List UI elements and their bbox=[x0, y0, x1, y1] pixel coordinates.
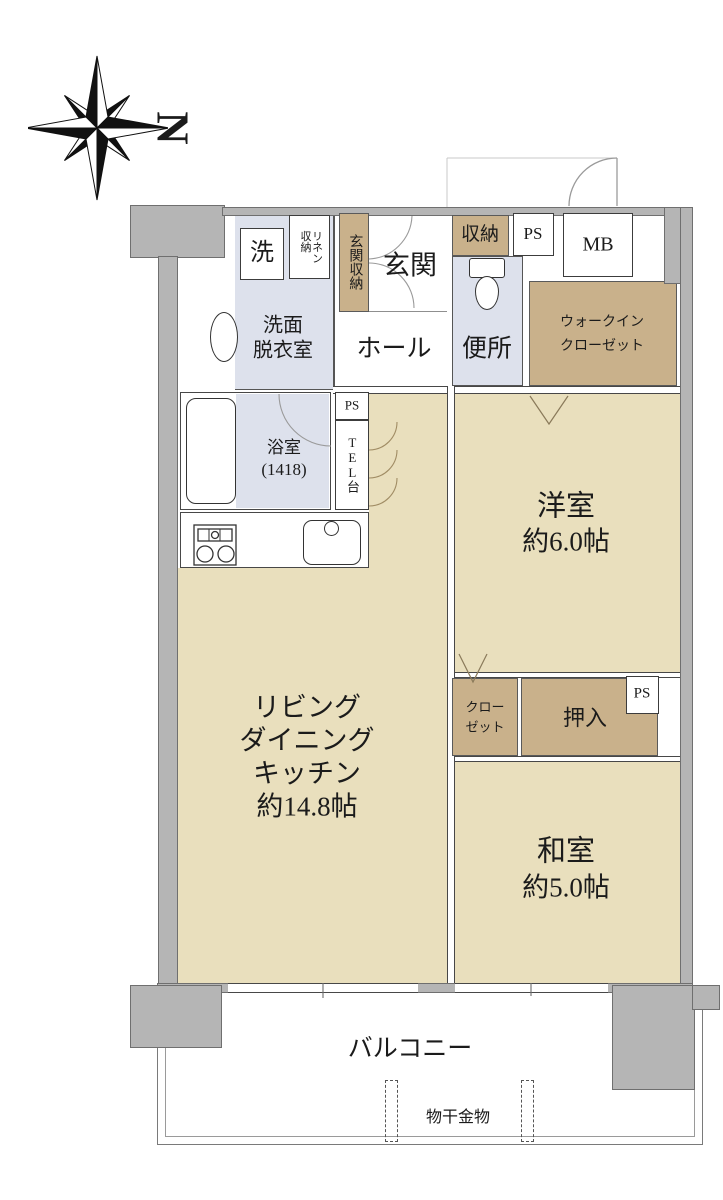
mb-label: MB bbox=[582, 234, 613, 257]
washroom-label-line1: 洗面 bbox=[263, 315, 303, 338]
entrance-storage-label: 玄関収納 bbox=[347, 234, 362, 290]
front-door-arc bbox=[569, 158, 617, 206]
japanese-room-label-line1: 和室 bbox=[537, 835, 595, 868]
ldk-label-line2: ダイニング bbox=[240, 725, 375, 756]
linen-storage-label: リネン 収納 bbox=[298, 231, 321, 264]
balcony-label: バルコニー bbox=[348, 1036, 473, 1065]
opening-mark-western-top bbox=[530, 396, 568, 424]
oshiire-label: 押入 bbox=[563, 705, 607, 730]
tel-stand-label: TEL台 bbox=[345, 435, 359, 493]
opening-mark-western-bottom bbox=[459, 654, 487, 682]
closet-label-line1: クロー bbox=[465, 701, 504, 716]
walk-in-closet-label-line1: ウォークイン bbox=[560, 315, 644, 331]
ldk-label-line1: リビング bbox=[253, 692, 361, 723]
storage-label: 収納 bbox=[461, 224, 499, 246]
ldk-label-line4: 約14.8帖 bbox=[256, 791, 357, 822]
floor-plan: N 洗 リネン 収納 玄関収納 玄関 ホール 収納 PS MB 便所 ウォークイ… bbox=[0, 0, 723, 1200]
washer-label: 洗 bbox=[250, 240, 274, 268]
western-room-label-line2: 約6.0帖 bbox=[522, 526, 610, 557]
entrance-label: 玄関 bbox=[383, 250, 437, 281]
washroom-label-line2: 脱衣室 bbox=[253, 340, 313, 363]
bath-label-line1: 浴室 bbox=[267, 438, 301, 458]
tel-folding-door-arcs bbox=[369, 422, 397, 506]
stove-icon bbox=[194, 525, 236, 565]
ps-east-label: PS bbox=[634, 685, 651, 702]
toilet-label: 便所 bbox=[462, 336, 512, 365]
north-label: N bbox=[146, 111, 199, 144]
drying-hardware-label: 物干金物 bbox=[426, 1109, 490, 1127]
ps-top-label: PS bbox=[524, 224, 543, 244]
ps-mid-label: PS bbox=[345, 399, 359, 414]
hall-label: ホール bbox=[356, 336, 431, 365]
window-center-ticks bbox=[323, 983, 531, 998]
japanese-room-label-line2: 約5.0帖 bbox=[522, 872, 610, 903]
walk-in-closet-label-line2: クローゼット bbox=[560, 339, 644, 355]
ldk-label-line3: キッチン bbox=[253, 758, 361, 789]
western-room-label-line1: 洋室 bbox=[537, 490, 595, 523]
closet-label-line2: ゼット bbox=[465, 721, 504, 736]
bath-label-line2: (1418) bbox=[261, 460, 306, 480]
